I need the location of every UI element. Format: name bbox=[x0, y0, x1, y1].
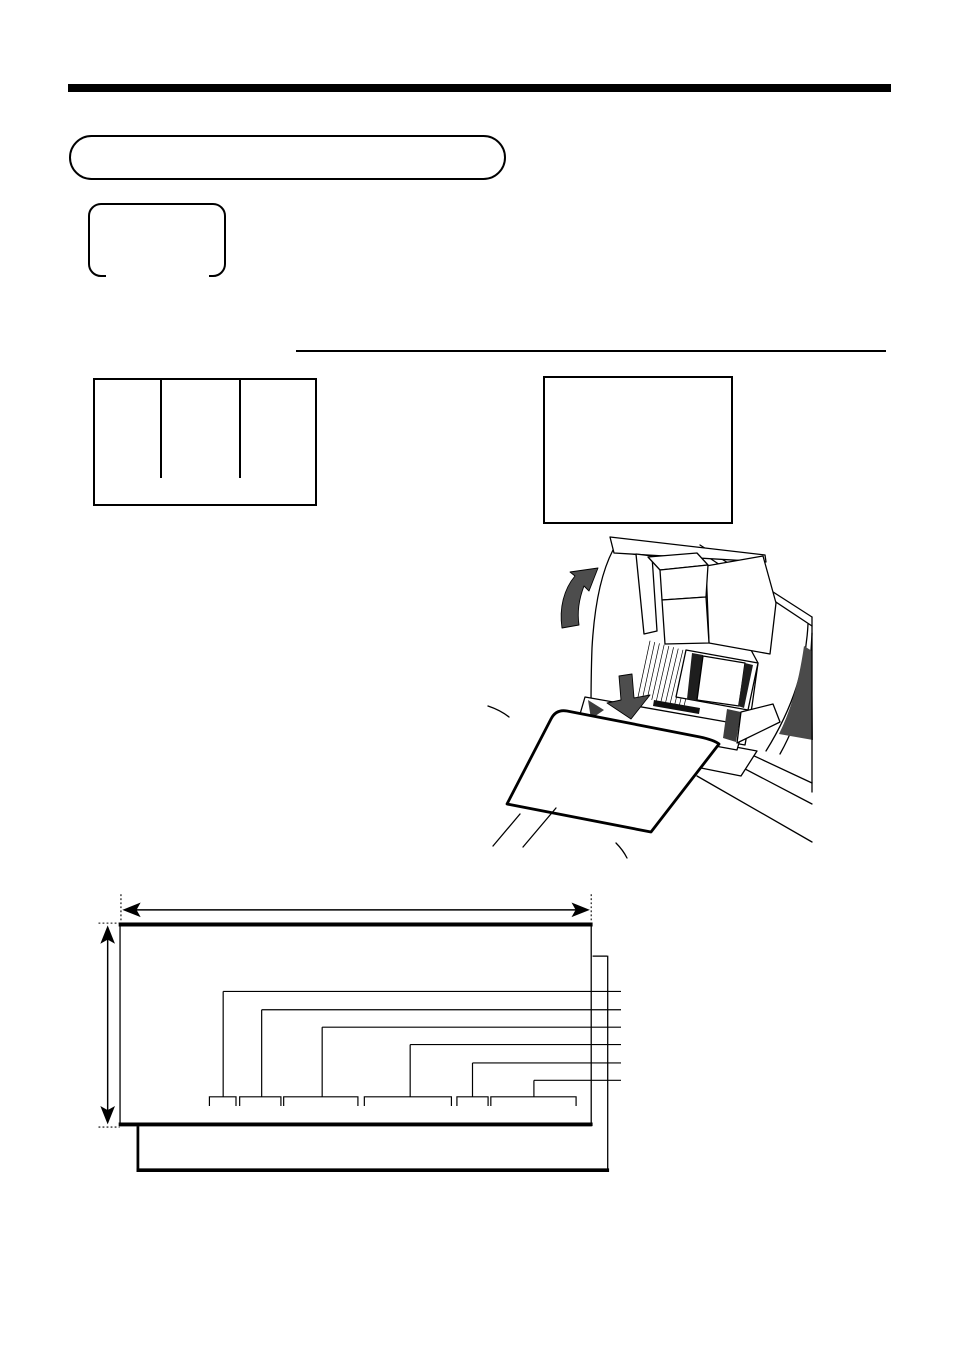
manual-page bbox=[0, 0, 954, 1350]
main-sheet-outline bbox=[120, 923, 591, 1126]
cover-inner-face bbox=[662, 597, 709, 644]
platen-roller bbox=[697, 656, 745, 706]
display-box bbox=[93, 378, 317, 506]
counter-line-1 bbox=[493, 814, 520, 846]
drawer-arc bbox=[616, 843, 627, 858]
note-box bbox=[543, 376, 733, 524]
key-cap-outline bbox=[88, 203, 226, 277]
print-zone-bracket bbox=[240, 1097, 281, 1106]
print-zone-bracket bbox=[457, 1097, 488, 1106]
print-zone-bracket bbox=[491, 1097, 576, 1106]
cover-handle-front bbox=[660, 565, 708, 600]
slip-layout-diagram bbox=[60, 875, 720, 1205]
display-box-divider-1 bbox=[160, 380, 162, 478]
key-cap-bottom-gap bbox=[106, 272, 209, 280]
printer-illustration bbox=[480, 525, 820, 860]
display-box-divider-2 bbox=[239, 380, 241, 478]
print-zone-bracket bbox=[209, 1097, 236, 1106]
divider-line bbox=[296, 350, 886, 352]
body-left-curve bbox=[488, 706, 509, 717]
ledge-line-3 bbox=[697, 776, 812, 842]
section-title-pill bbox=[69, 135, 506, 180]
leader-lines bbox=[209, 991, 621, 1106]
cover-right-panel bbox=[706, 556, 776, 654]
counter-line-2 bbox=[523, 808, 556, 847]
print-zone-bracket bbox=[284, 1097, 358, 1106]
header-rule bbox=[68, 84, 891, 92]
dark-side-window bbox=[779, 646, 813, 740]
curved-up-arrow-icon bbox=[561, 568, 598, 628]
print-zone-bracket bbox=[364, 1097, 451, 1106]
